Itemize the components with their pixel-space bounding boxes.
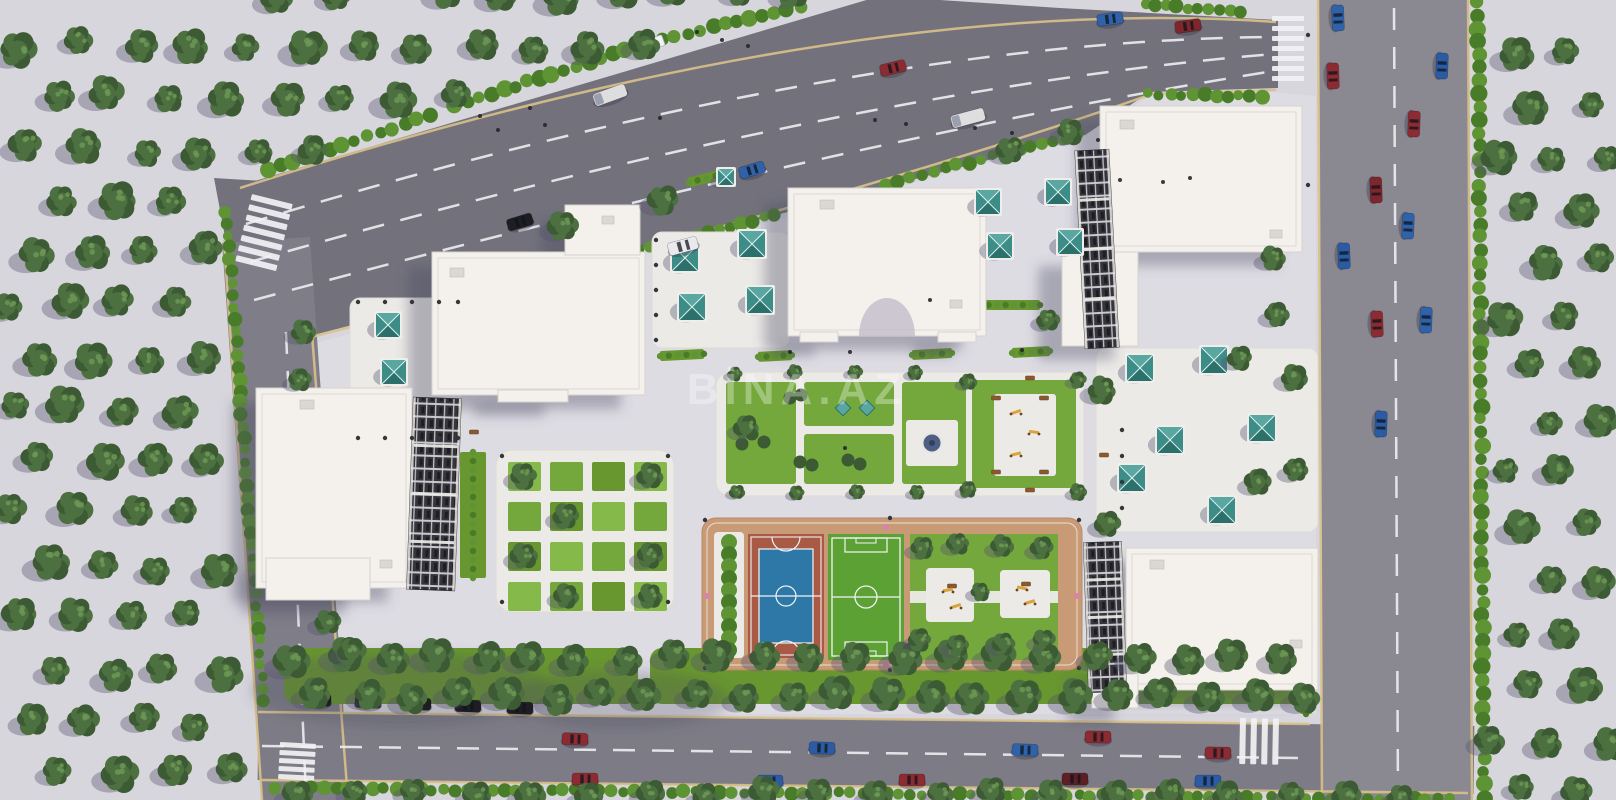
bollard	[703, 518, 707, 522]
pedestrian	[788, 350, 792, 354]
bollard	[437, 300, 441, 304]
bench	[1100, 453, 1109, 457]
pedestrian	[848, 350, 852, 354]
bollard	[356, 436, 360, 440]
bollard	[456, 436, 460, 440]
bollard	[456, 300, 460, 304]
bench	[1026, 376, 1035, 380]
bench	[992, 470, 1001, 474]
pedestrian	[904, 122, 908, 126]
bollard	[654, 338, 658, 342]
bench	[1026, 488, 1035, 492]
bench	[470, 430, 479, 434]
bollard	[1306, 183, 1310, 187]
pedestrian	[1118, 178, 1122, 182]
bollard	[1120, 480, 1124, 484]
site-plan-render: BİNA.AZ	[0, 0, 1616, 800]
pedestrian	[720, 38, 724, 42]
roof-unit	[300, 400, 314, 409]
car	[1084, 731, 1113, 747]
pedestrian	[695, 30, 699, 34]
bollard	[383, 300, 387, 304]
track-decoration	[883, 524, 889, 530]
roof-unit	[950, 300, 962, 308]
bollard	[410, 300, 414, 304]
bollard	[888, 516, 892, 520]
bollard	[500, 454, 504, 458]
building-facade	[407, 397, 462, 591]
bench	[1040, 396, 1049, 400]
building-top-middle	[788, 188, 986, 342]
bollard	[1120, 454, 1124, 458]
roof-unit	[1120, 120, 1134, 129]
bollard	[654, 263, 658, 267]
pedestrian	[873, 118, 877, 122]
playground-plaza	[1000, 570, 1050, 618]
bollard	[383, 436, 387, 440]
hedge-planter	[460, 449, 486, 581]
roof-unit	[380, 560, 392, 568]
bollard	[666, 600, 670, 604]
pedestrian	[1020, 348, 1024, 352]
bollard	[410, 436, 414, 440]
bollard	[437, 436, 441, 440]
pedestrian	[543, 123, 547, 127]
bench	[948, 584, 957, 588]
pedestrian	[1188, 176, 1192, 180]
car	[898, 774, 927, 790]
bollard	[1077, 518, 1081, 522]
bollard	[654, 288, 658, 292]
pedestrian	[1161, 180, 1165, 184]
roof-unit	[1270, 230, 1282, 238]
bench	[1022, 582, 1031, 586]
car	[1061, 773, 1090, 789]
bollard	[1120, 428, 1124, 432]
track-decoration	[704, 593, 710, 599]
bench	[1040, 470, 1049, 474]
render-viewport: BİNA.AZ	[0, 0, 1616, 800]
watermark: BİNA.AZ	[687, 365, 907, 414]
bollard	[1306, 33, 1310, 37]
car	[1204, 747, 1233, 763]
bollard	[666, 454, 670, 458]
track-decoration	[1074, 593, 1080, 599]
roof-unit	[602, 216, 614, 224]
bollard	[654, 238, 658, 242]
pedestrian	[1010, 131, 1014, 135]
bench	[992, 396, 1001, 400]
pedestrian	[928, 298, 932, 302]
roof-unit	[450, 268, 464, 277]
pedestrian	[478, 114, 482, 118]
roof-unit	[1150, 560, 1164, 569]
bollard	[500, 600, 504, 604]
bollard	[654, 313, 658, 317]
pedestrian	[528, 106, 532, 110]
roof-unit	[820, 200, 834, 209]
pedestrian	[746, 44, 750, 48]
pedestrian	[843, 446, 847, 450]
bollard	[356, 300, 360, 304]
bollard	[1120, 506, 1124, 510]
pedestrian	[658, 116, 662, 120]
hedge-planter	[977, 300, 1043, 310]
pedestrian	[1096, 138, 1100, 142]
pedestrian	[496, 128, 500, 132]
